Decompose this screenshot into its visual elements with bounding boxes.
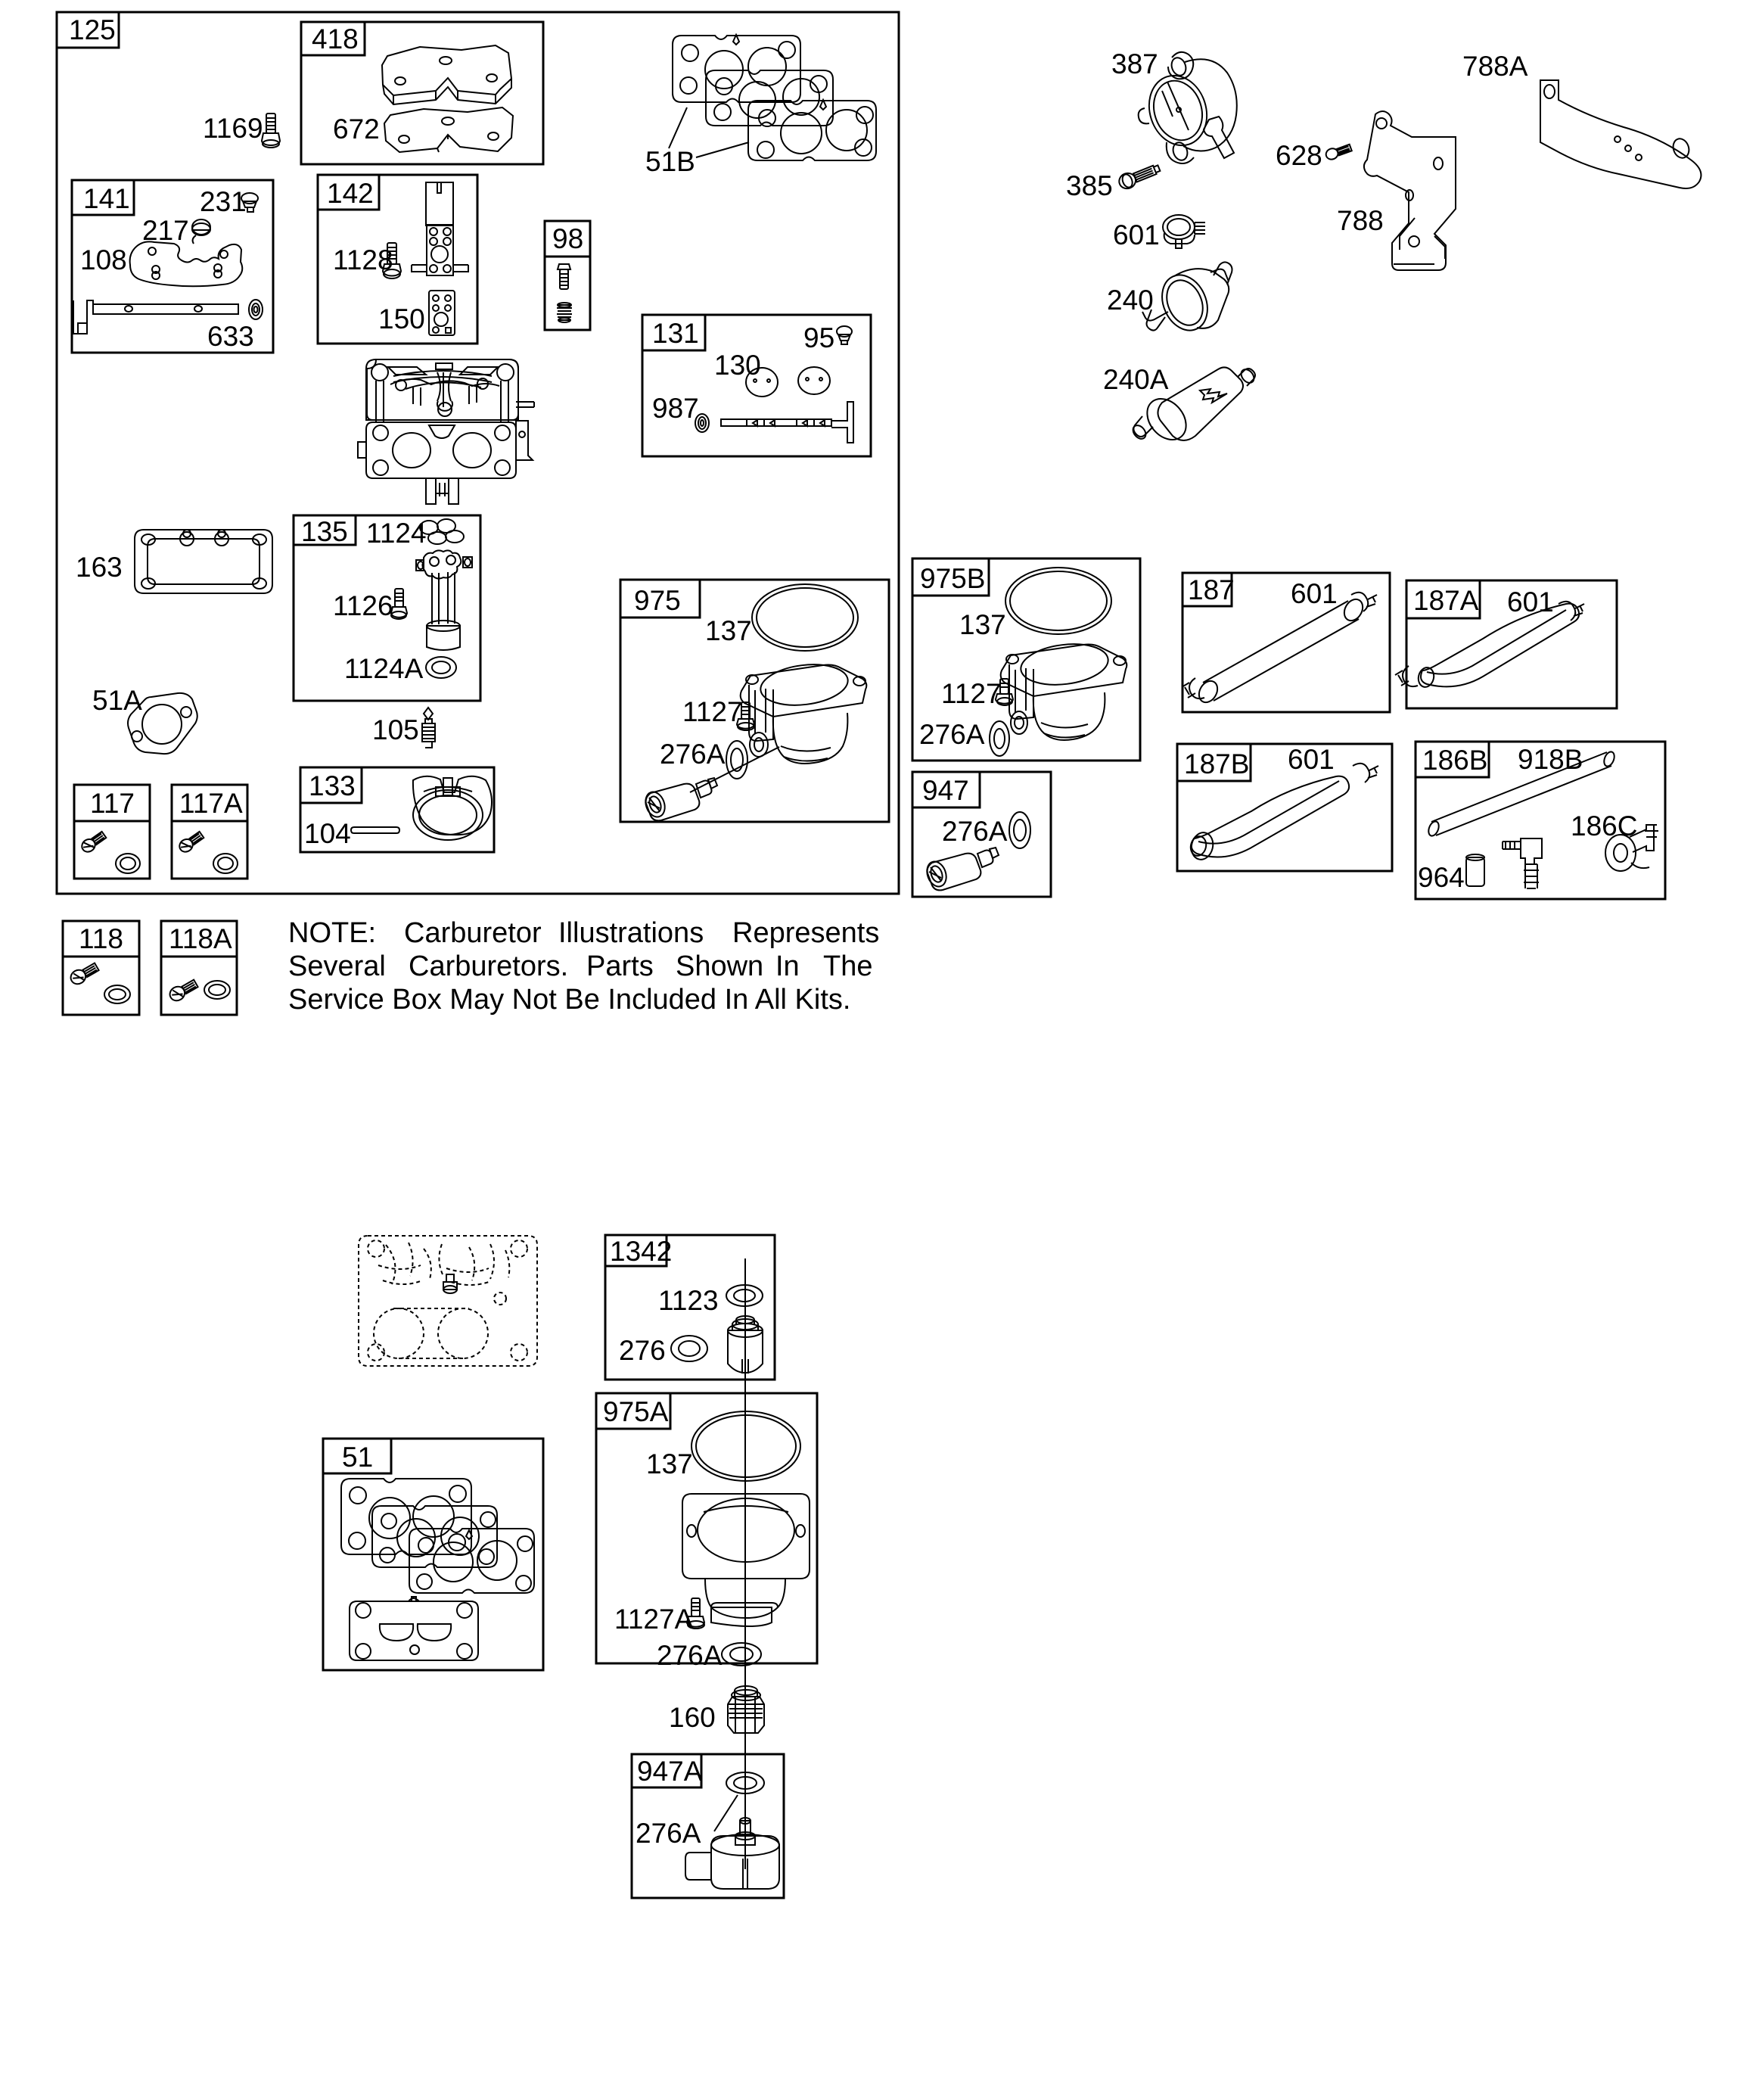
svg-text:Parts: Parts	[586, 950, 654, 982]
svg-text:788A: 788A	[1462, 51, 1528, 82]
svg-text:142: 142	[327, 178, 374, 209]
svg-text:387: 387	[1111, 48, 1158, 79]
svg-text:51: 51	[342, 1442, 373, 1473]
svg-text:601: 601	[1113, 219, 1160, 250]
svg-text:1127: 1127	[941, 678, 1002, 709]
svg-text:Illustrations: Illustrations	[558, 917, 704, 949]
svg-text:1128: 1128	[333, 244, 393, 275]
svg-text:Represents: Represents	[732, 917, 879, 949]
svg-text:51B: 51B	[645, 146, 695, 177]
svg-text:276A: 276A	[942, 816, 1008, 847]
svg-text:186B: 186B	[1422, 745, 1487, 776]
svg-text:105: 105	[372, 714, 419, 745]
svg-text:117: 117	[90, 788, 135, 819]
svg-text:150: 150	[378, 303, 425, 334]
svg-text:1127A: 1127A	[614, 1604, 694, 1635]
svg-text:125: 125	[69, 14, 116, 45]
svg-text:240: 240	[1107, 285, 1154, 316]
svg-text:975: 975	[634, 585, 681, 616]
svg-text:947A: 947A	[637, 1756, 703, 1787]
svg-text:163: 163	[76, 552, 123, 583]
svg-text:276A: 276A	[660, 739, 726, 770]
svg-text:964: 964	[1418, 862, 1465, 893]
svg-text:276A: 276A	[636, 1818, 701, 1849]
svg-text:187B: 187B	[1184, 748, 1249, 779]
svg-text:Carburetors.: Carburetors.	[409, 950, 568, 982]
svg-text:672: 672	[333, 114, 380, 145]
svg-text:975A: 975A	[603, 1396, 669, 1427]
svg-text:187A: 187A	[1413, 585, 1479, 616]
svg-text:1123: 1123	[658, 1285, 719, 1316]
svg-text:628: 628	[1276, 140, 1322, 171]
svg-text:118: 118	[79, 923, 123, 954]
svg-text:137: 137	[646, 1448, 693, 1479]
svg-text:Shown: Shown	[676, 950, 763, 982]
svg-text:601: 601	[1507, 586, 1554, 618]
svg-text:601: 601	[1291, 578, 1338, 609]
svg-text:108: 108	[80, 244, 127, 275]
svg-text:141: 141	[83, 183, 130, 214]
svg-text:633: 633	[207, 321, 254, 352]
svg-text:133: 133	[309, 770, 356, 801]
svg-text:117A: 117A	[179, 788, 243, 819]
svg-text:1342: 1342	[610, 1236, 672, 1267]
svg-text:276: 276	[619, 1335, 666, 1366]
svg-text:Service Box May Not Be Include: Service Box May Not Be Included In All K…	[288, 984, 850, 1016]
svg-text:276A: 276A	[657, 1640, 723, 1671]
svg-text:1124A: 1124A	[344, 653, 424, 684]
svg-text:118A: 118A	[169, 923, 232, 954]
svg-text:95: 95	[803, 322, 834, 353]
svg-text:1126: 1126	[333, 590, 393, 621]
svg-text:In: In	[775, 950, 800, 982]
svg-text:1124: 1124	[366, 518, 427, 549]
svg-text:1169: 1169	[203, 113, 263, 144]
svg-text:135: 135	[301, 516, 348, 547]
svg-text:Several: Several	[288, 950, 386, 982]
svg-text:601: 601	[1288, 744, 1335, 775]
svg-text:788: 788	[1337, 205, 1384, 236]
svg-text:NOTE:: NOTE:	[288, 917, 376, 949]
svg-text:418: 418	[312, 23, 359, 54]
svg-text:51A: 51A	[92, 685, 142, 716]
svg-text:385: 385	[1066, 170, 1113, 201]
svg-text:187: 187	[1188, 574, 1235, 605]
svg-text:918B: 918B	[1518, 744, 1583, 775]
svg-text:276A: 276A	[919, 719, 985, 750]
svg-text:1127: 1127	[682, 696, 743, 727]
svg-text:Carburetor: Carburetor	[404, 917, 542, 949]
svg-text:987: 987	[652, 393, 699, 424]
svg-text:137: 137	[705, 615, 752, 646]
svg-text:160: 160	[669, 1702, 716, 1733]
svg-text:975B: 975B	[920, 563, 985, 594]
svg-text:947: 947	[922, 775, 969, 806]
svg-text:98: 98	[552, 223, 583, 254]
svg-text:240A: 240A	[1103, 364, 1169, 395]
svg-text:131: 131	[652, 318, 699, 349]
svg-text:The: The	[823, 950, 872, 982]
svg-text:231: 231	[200, 186, 247, 217]
svg-text:137: 137	[959, 609, 1006, 640]
svg-text:130: 130	[714, 350, 761, 381]
svg-text:104: 104	[304, 818, 351, 849]
